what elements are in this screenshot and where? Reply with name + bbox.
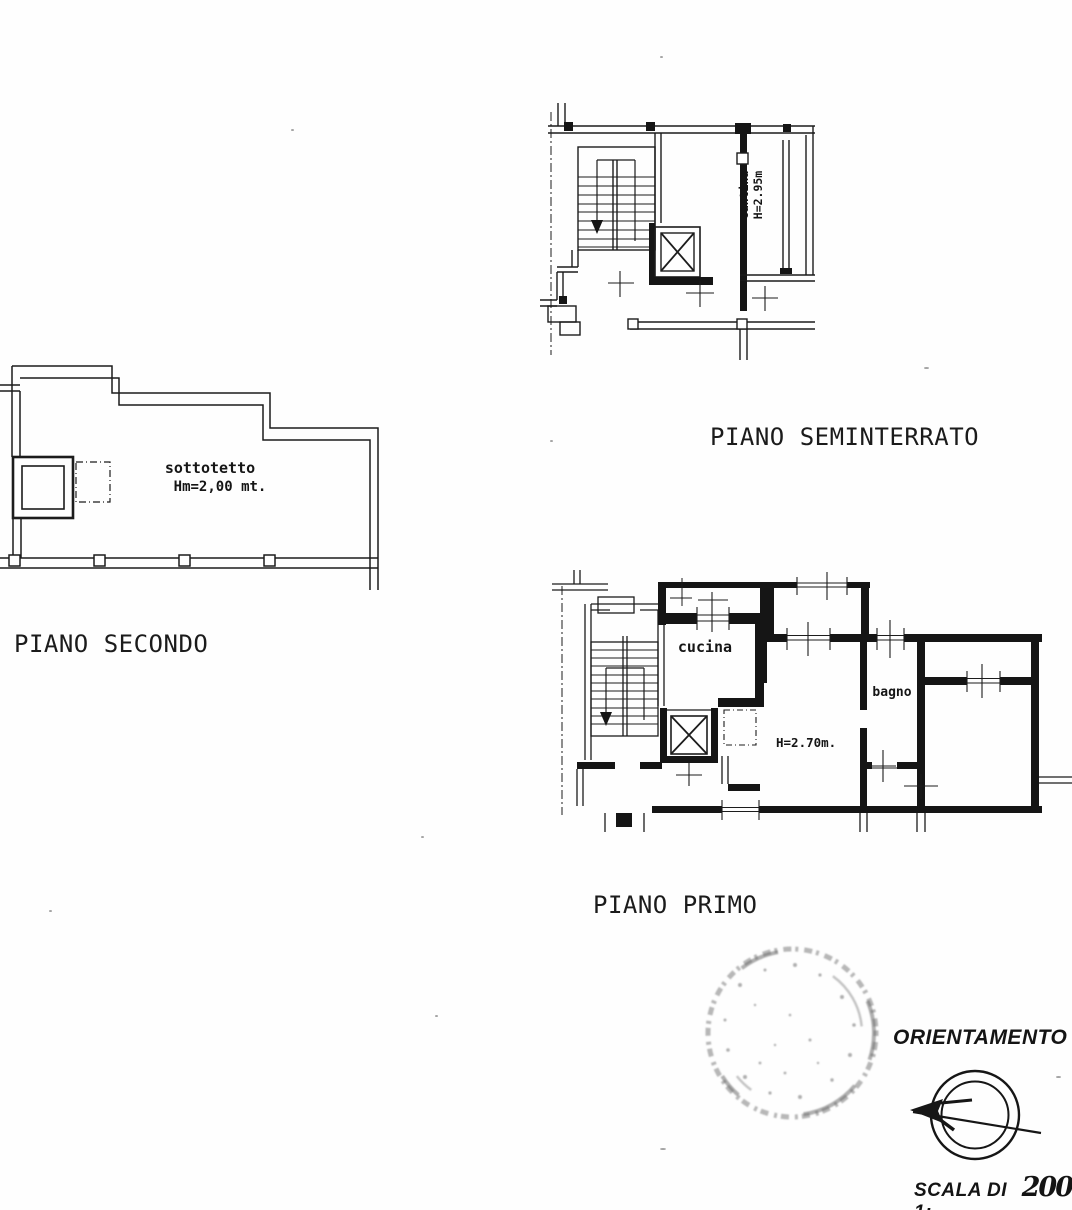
scan-speckle [49,910,52,912]
scan-speckle [924,367,929,369]
terrace-box [13,457,73,518]
scan-speckle [291,129,294,131]
dashed-opening [76,462,110,502]
elevator [649,223,713,285]
elevator [660,708,718,763]
scan-speckle [550,440,553,442]
scale-note: SCALA DI 1: 200 [914,1172,1072,1210]
floor-plan-sheet: cantina H=2.95m PIANO SEMINTERRATO [0,0,1072,1210]
scan-speckle [435,1015,438,1017]
bagno-label: bagno [872,685,911,700]
down-arrow-icon [591,220,603,234]
cantina-height-label: H=2.95m [751,171,765,220]
scan-speckle [421,836,424,838]
ink-stamp [700,945,890,1135]
seminterrato-floor-title: PIANO SEMINTERRATO [710,423,979,451]
scale-value: 200 [1022,1172,1072,1203]
cantina-room-label: cantina [737,171,751,220]
scale-label: SCALA DI 1: [914,1180,1016,1210]
seminterrato-plan-drawing: cantina H=2.95m [540,103,840,370]
primo-floor-title: PIANO PRIMO [593,891,757,919]
compass-north-icon [893,1053,1063,1171]
cucina-label: cucina [678,638,732,656]
secondo-floor-title: PIANO SECONDO [14,630,208,658]
stairs [591,636,658,736]
orientamento-label: ORIENTAMENTO [893,1026,1067,1050]
sottotetto-height-label: Hm=2,00 mt. [174,479,267,495]
dashed-opening [724,710,756,745]
secondo-plan-drawing: sottotetto Hm=2,00 mt. [0,358,392,598]
ceiling-height-label: H=2.70m. [776,735,836,750]
scan-speckle [660,56,663,58]
scan-speckle [660,1148,666,1150]
scan-speckle [1056,1076,1061,1078]
sottotetto-label: sottotetto [165,459,255,477]
stairs [578,147,655,250]
primo-plan-drawing: cucina bagno H=2.70m. [552,570,1072,834]
